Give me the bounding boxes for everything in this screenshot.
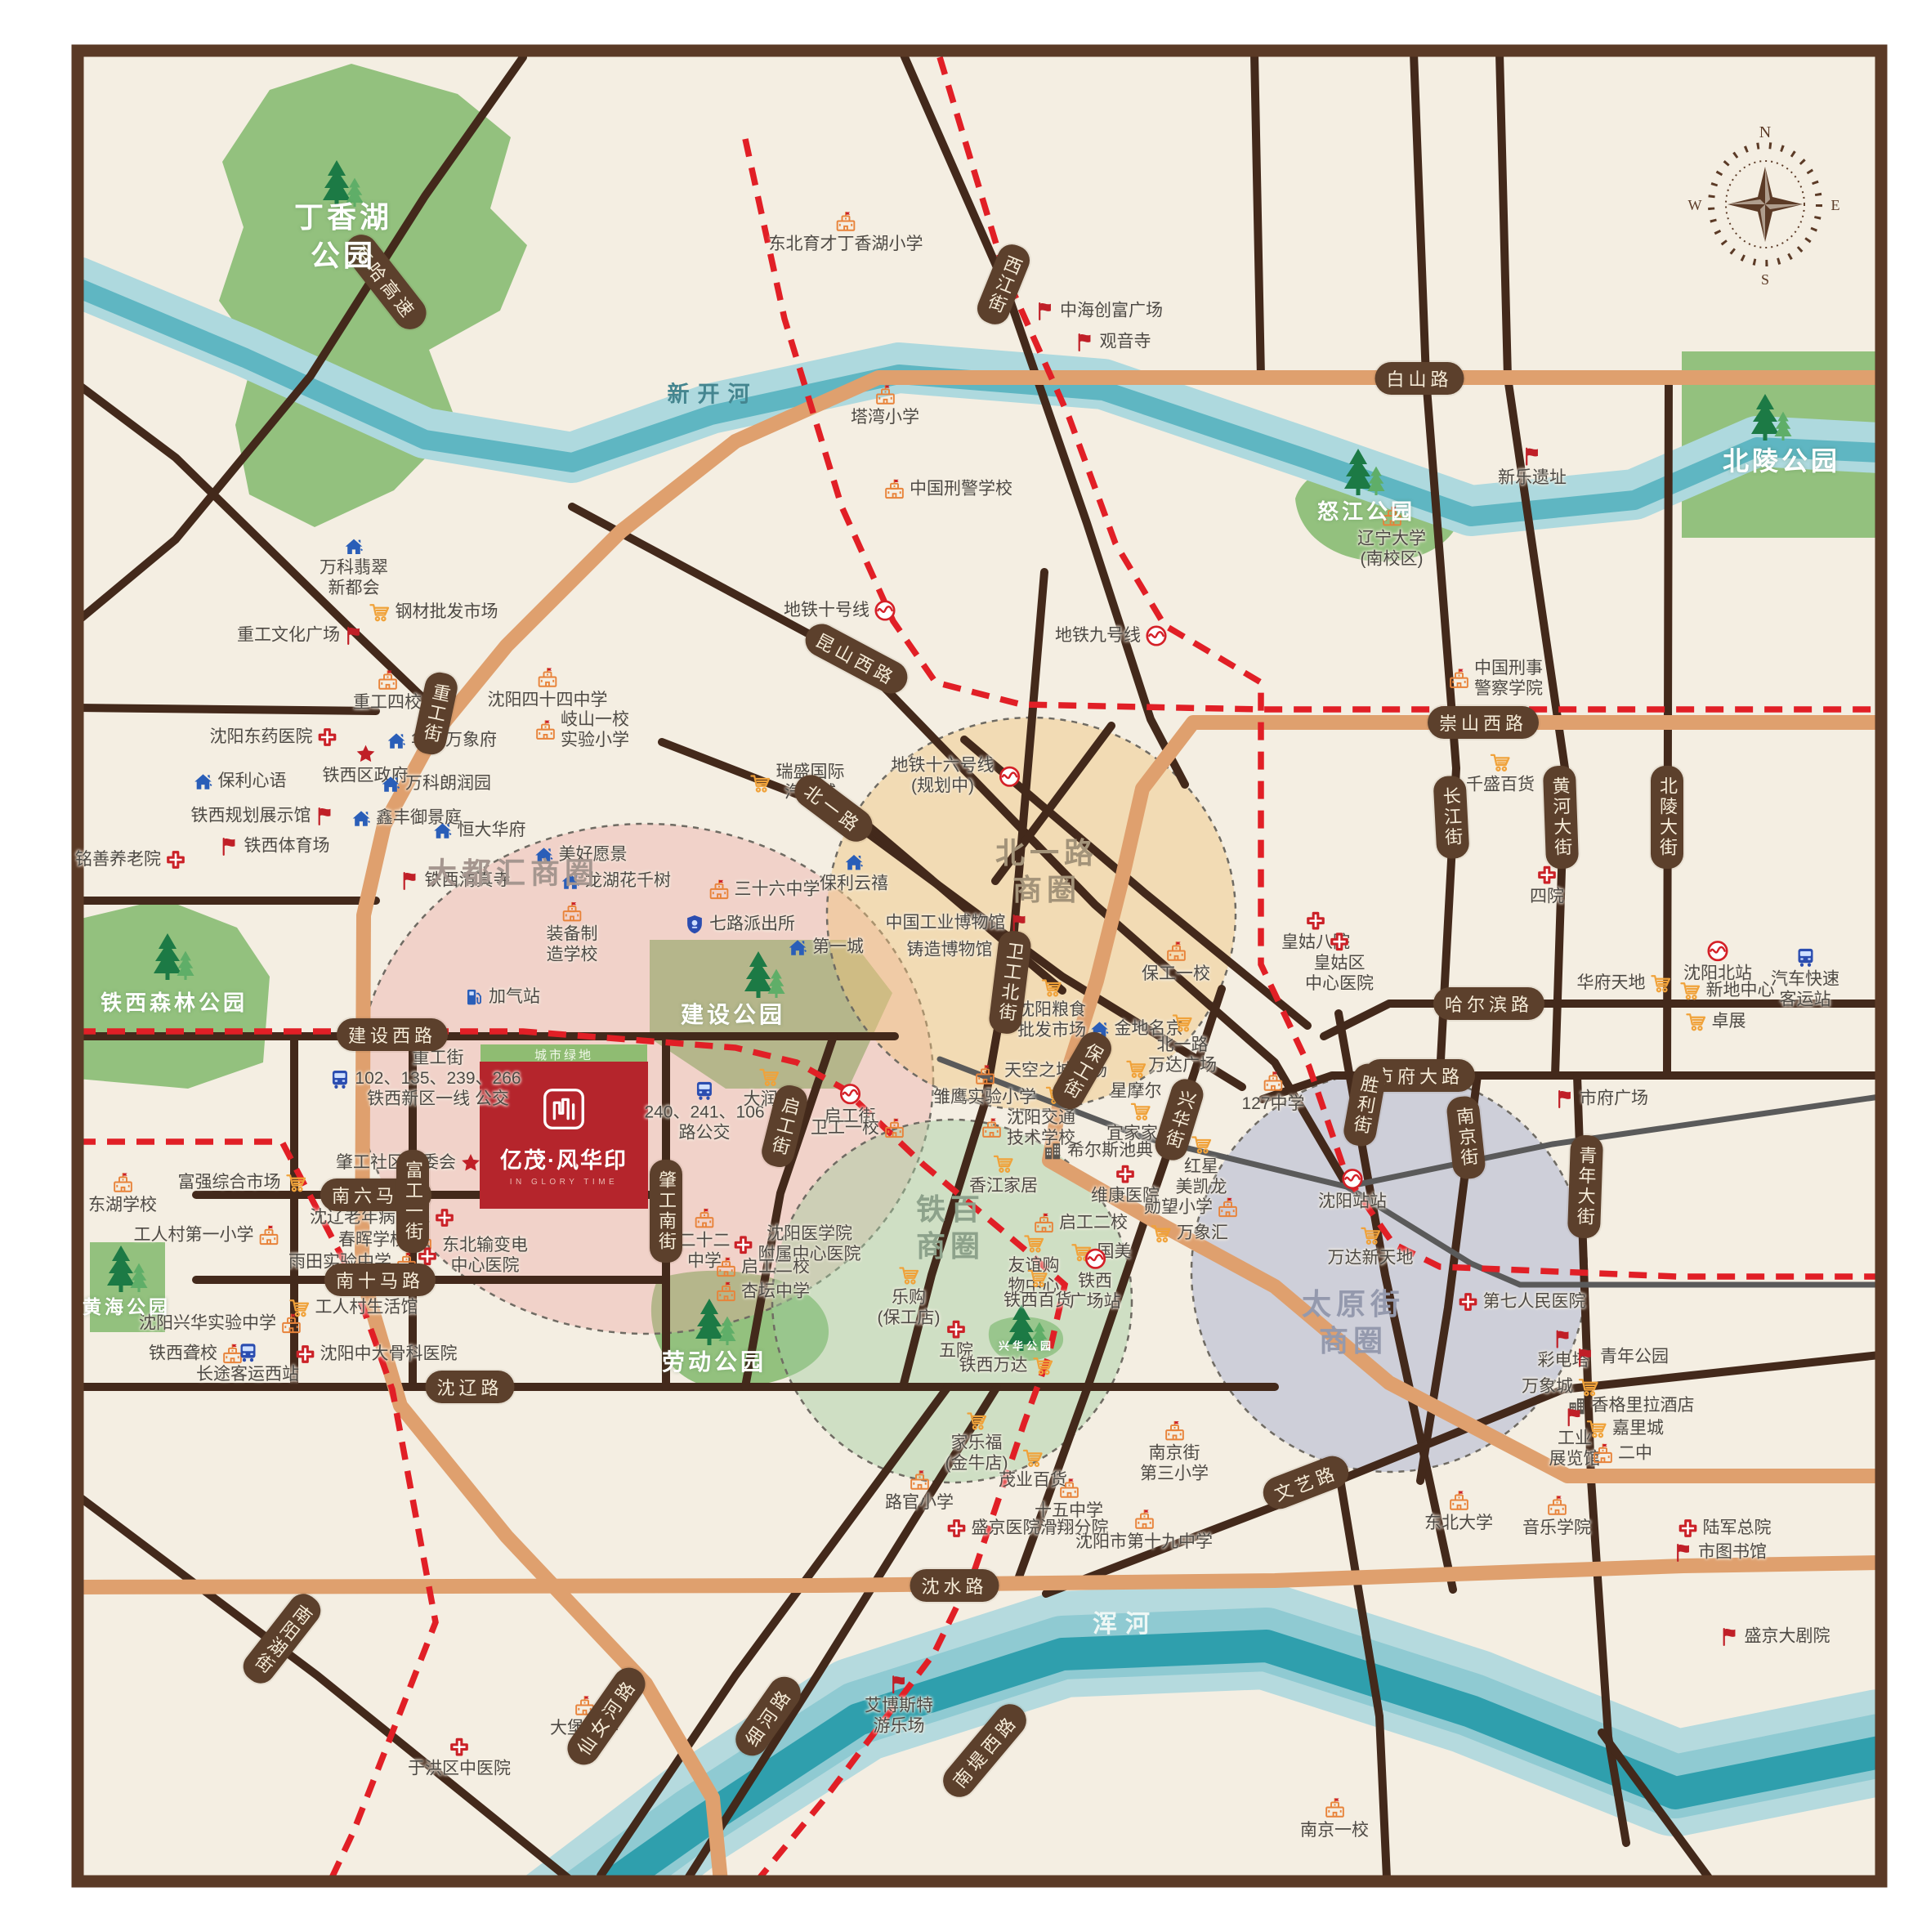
metro-icon [1084, 1247, 1106, 1270]
cart-icon [1359, 1224, 1382, 1247]
cart-icon [285, 1171, 308, 1194]
flag-icon [220, 837, 240, 857]
school-icon [981, 1118, 1003, 1140]
school-poi: 保工一校 [1142, 941, 1210, 985]
poi-label: 铁西 广场站 [1070, 1272, 1121, 1313]
poi-label: 盛京大剧院 [1745, 1627, 1830, 1648]
flag-icon [1720, 1627, 1741, 1648]
poi-label: 中国刑警学校 [910, 480, 1012, 500]
cart-icon [1022, 1232, 1045, 1254]
school-poi: 岐山一校 实验小学 [534, 710, 629, 751]
school-icon [909, 1469, 931, 1491]
school-poi: 勋望小学 [1144, 1197, 1239, 1219]
flag-icon [1522, 446, 1543, 467]
poi-label: 卫工一校 [811, 1119, 879, 1139]
cross-icon [733, 1234, 754, 1255]
cart-icon [1171, 1011, 1194, 1034]
cart-poi: 卓展 [1685, 1010, 1746, 1033]
poi-label: 沈阳市第十九中学 [1075, 1532, 1213, 1553]
poi-label: 万象城 [1522, 1377, 1573, 1398]
cross-poi: 于洪区中医院 [408, 1737, 511, 1780]
poi-label: 富强综合市场 [178, 1173, 281, 1193]
flag-poi: 铁西体育场 [220, 837, 330, 857]
house-poi: 第一城 [787, 937, 864, 958]
school-poi: 东湖学校 [88, 1172, 157, 1216]
poi-label: 观音寺 [1100, 333, 1151, 353]
poi-label: 加气站 [489, 987, 540, 1008]
poi-label: 南京一校 [1300, 1821, 1369, 1841]
school-poi: 重工四校 [353, 669, 422, 713]
poi-label: 香格里拉酒店 [1592, 1396, 1695, 1416]
cart-icon [1129, 1100, 1152, 1123]
school-icon [1592, 1443, 1614, 1465]
poi-label: 中国刑事 警察学院 [1474, 659, 1543, 700]
poi-label: 艾博斯特 游乐场 [865, 1697, 933, 1737]
park-label: 黄海公园 [83, 1295, 171, 1320]
road-pill: 南十马路 [324, 1263, 436, 1296]
poi-label: 市图书馆 [1698, 1543, 1767, 1563]
flag-icon [1035, 302, 1056, 322]
river-label: 浑河 [1093, 1603, 1158, 1639]
poi-label: 保工一校 [1142, 964, 1210, 985]
cart-icon [965, 1409, 988, 1432]
poi-label: 四院 [1530, 888, 1564, 908]
poi-label: 铭善养老院 [75, 850, 161, 870]
cross-icon [946, 1518, 968, 1539]
park-label: 北陵公园 [1723, 445, 1840, 479]
poi-label: 地铁十六号线 (规划中) [892, 756, 995, 797]
cart-icon [749, 771, 772, 794]
school-icon [1217, 1197, 1239, 1219]
school-poi: 塔湾小学 [851, 384, 919, 428]
cart-icon [1026, 1267, 1049, 1290]
school-poi: 启工二校 [715, 1257, 810, 1279]
poi-label: 钢材批发市场 [396, 602, 498, 623]
school-icon [534, 720, 557, 742]
cart-icon [758, 1066, 780, 1089]
building-poi: 希尔斯池典 [1042, 1140, 1153, 1161]
road-pill: 富工一街 [396, 1150, 429, 1253]
poi-label: 沈阳中大骨科医院 [320, 1344, 458, 1365]
cart-icon [1150, 1222, 1173, 1245]
flag-icon [889, 1675, 910, 1695]
poi-label: 万科翡翠 新都会 [320, 558, 388, 599]
school-icon [537, 667, 559, 689]
poi-label: 长途客运西站 [196, 1365, 299, 1385]
park-label: 兴华公园 [999, 1340, 1054, 1354]
school-icon [1058, 1478, 1080, 1500]
cross-poi: 陆军总院 [1678, 1518, 1772, 1539]
school-poi: 沈阳市第十九中学 [1075, 1509, 1213, 1553]
bus-icon [237, 1341, 259, 1363]
house-icon [351, 807, 372, 829]
park-label: 铁西森林公园 [101, 990, 248, 1017]
school-icon [883, 479, 905, 501]
house-poi: 恒大华府 [432, 820, 526, 841]
flag-poi: 市府广场 [1555, 1089, 1648, 1110]
metro-icon [1706, 940, 1729, 963]
flag-icon [1555, 1089, 1576, 1110]
park-label: 怒江公园 [1317, 499, 1415, 526]
poi-label: 东北输变电 中心医院 [442, 1236, 528, 1277]
poi-label: 重工街 102、135、239、266 铁西新区一线 公交 [355, 1049, 521, 1109]
road-pill: 胜利街 [1342, 1062, 1388, 1148]
house-icon [432, 820, 454, 841]
poi-label: 重工四校 [353, 693, 422, 713]
poi-label: 乐购 (保工店) [878, 1288, 941, 1329]
metro-icon [1145, 624, 1168, 647]
school-poi: 东北大学 [1424, 1490, 1493, 1534]
park-label: 丁香湖 公园 [294, 199, 392, 275]
poi-label: 嘉里城 [1612, 1419, 1664, 1439]
metro-icon [999, 765, 1021, 788]
poi-label: 南京街 第三小学 [1140, 1444, 1209, 1485]
flag-poi: 铁西规划展示馆 [191, 807, 336, 827]
metro-icon [874, 599, 896, 622]
cross-poi: 第七人民医院 [1458, 1291, 1586, 1313]
house-poi: 万科翡翠 新都会 [320, 535, 388, 599]
poi-label: 启工二校 [1059, 1214, 1128, 1234]
cart-icon [1190, 1133, 1213, 1156]
poi-label: 红星 美凯龙 [1176, 1157, 1227, 1198]
cart-poi: 工人村生活馆 [288, 1296, 418, 1319]
school-icon [1324, 1797, 1346, 1819]
poi-label: 铸造博物馆 [907, 941, 993, 961]
flag-icon [1565, 1407, 1585, 1428]
cross-poi: 皇姑区 中心医院 [1305, 931, 1374, 995]
flag-icon [1576, 1348, 1596, 1368]
school-icon [1165, 941, 1187, 963]
school-icon [1448, 1490, 1470, 1512]
poi-label: 第一城 [812, 937, 864, 958]
school-icon [715, 1257, 737, 1279]
flag-poi: 重工文化广场 [237, 626, 364, 646]
bus-poi: 重工街 102、135、239、266 铁西新区一线 公交 [329, 1049, 521, 1109]
poi-label: 沈阳站站 [1318, 1192, 1387, 1213]
cross-icon [1305, 910, 1326, 932]
school-poi: 雏鹰实验小学 [933, 1064, 1036, 1108]
cart-icon [1685, 1010, 1708, 1033]
cart-poi: 新地中心 [1679, 979, 1775, 1002]
cross-icon [945, 1319, 967, 1340]
road-pill: 白山路 [1374, 362, 1464, 395]
poi-label: 汽车快速 客运站 [1771, 970, 1839, 1011]
road-pill: 哈尔滨路 [1433, 987, 1544, 1020]
metro-poi: 地铁九号线 [1055, 624, 1168, 647]
gas-poi: 加气站 [463, 986, 540, 1008]
bus-poi: 汽车快速 客运站 [1771, 946, 1839, 1011]
cart-icon [1124, 1058, 1147, 1080]
school-poi: 沈阳四十四中学 [488, 667, 608, 711]
school-icon [883, 1118, 905, 1140]
poi-label: 二中 [1618, 1444, 1652, 1465]
road-pill: 文艺路 [1258, 1451, 1353, 1514]
cart-icon [897, 1263, 920, 1286]
poi-label: 音乐学院 [1522, 1518, 1591, 1539]
poi-label: 塔湾小学 [851, 408, 919, 428]
school-poi: 装备制 造学校 [547, 901, 598, 966]
road-pill: 南阳湖街 [237, 1588, 326, 1689]
school-poi: 中国刑事 警察学院 [1448, 659, 1543, 700]
cross-icon [1458, 1291, 1479, 1313]
road-pill: 沈水路 [910, 1569, 999, 1602]
flag-poi: 青年公园 [1576, 1348, 1669, 1368]
poi-label: 沈阳四十四中学 [488, 691, 608, 711]
poi-label: 装备制 造学校 [547, 925, 598, 966]
school-icon [708, 879, 731, 901]
business-circle-label: 太原街 商圈 [1302, 1286, 1405, 1359]
school-icon [694, 1208, 716, 1230]
park-label: 建设公园 [681, 1000, 785, 1030]
cart-poi: 铁西百货 [1003, 1267, 1072, 1312]
poi-label: 路官小学 [885, 1493, 954, 1514]
flag-poi: 盛京大剧院 [1720, 1627, 1830, 1648]
poi-label: 工人村生活馆 [315, 1298, 418, 1318]
school-icon [1262, 1071, 1284, 1093]
police-poi: 七路派出所 [684, 914, 795, 935]
poi-label: 岐山一校 实验小学 [561, 710, 629, 751]
cross-icon [1329, 931, 1350, 952]
poi-label: 三十六中学 [735, 880, 820, 901]
school-icon [974, 1064, 996, 1086]
location-map: N E S W 城市绿地 亿茂·风华印 IN GLORY TIME 东北育才丁香… [0, 0, 1931, 1932]
star-icon [355, 744, 376, 765]
house-icon [843, 852, 865, 873]
poi-label: 万科朗润园 [405, 774, 491, 794]
business-circle-label: 大都汇商圈 [427, 855, 599, 892]
poi-label: 保利心语 [218, 771, 287, 792]
cross-poi: 东北输变电 中心医院 [417, 1236, 528, 1277]
business-circle-label: 铁百 商圈 [916, 1191, 985, 1264]
poi-label: 中海创富广场 [1060, 302, 1163, 322]
road-pill: 西江街 [973, 240, 1035, 329]
poi-label: 铁西万达 [959, 1356, 1028, 1376]
poi-label: 市府广场 [1580, 1089, 1648, 1110]
cross-poi: 沈阳中大骨科医院 [295, 1344, 458, 1365]
road-pill: 崇山西路 [1428, 706, 1539, 739]
cart-icon [1679, 979, 1702, 1002]
poi-label: 卓展 [1712, 1012, 1746, 1032]
school-poi: 中国刑警学校 [883, 479, 1012, 501]
poi-label: 恒大华府 [458, 821, 526, 841]
poi-label: 沈阳东药医院 [210, 727, 313, 748]
school-poi: 路官小学 [885, 1469, 954, 1514]
metro-poi: 地铁十号线 [784, 599, 896, 622]
school-poi: 三十六中学 [708, 879, 820, 901]
poi-label: 辽宁大学 (南校区) [1357, 530, 1426, 570]
cart-icon [288, 1296, 311, 1319]
star-icon [460, 1152, 481, 1174]
poi-label: 万象汇 [1177, 1223, 1228, 1244]
poi-label: 东北大学 [1424, 1514, 1493, 1534]
house-icon [380, 773, 401, 794]
school-poi: 南京街 第三小学 [1140, 1420, 1209, 1485]
flag-icon [1075, 333, 1096, 353]
bus-poi: 长途客运西站 [196, 1341, 299, 1385]
cross-icon [295, 1344, 316, 1365]
cart-poi: 沈阳粮食 批发市场 [1017, 976, 1086, 1041]
house-poi: 万科朗润园 [380, 773, 491, 794]
cross-icon [165, 849, 186, 870]
road-pill: 黄河大街 [1543, 765, 1579, 869]
poi-label: 华府天地 [1577, 973, 1646, 994]
road-pill: 沈辽路 [425, 1371, 514, 1403]
poi-label: 新地中心 [1706, 981, 1775, 1001]
poi-label: 勋望小学 [1144, 1198, 1213, 1219]
bus-icon [1795, 946, 1817, 968]
house-poi: 保利心语 [193, 771, 287, 792]
poi-label: 万达新天地 [1328, 1249, 1414, 1269]
poi-label: 陆军总院 [1703, 1518, 1772, 1539]
poi-label: 重工文化广场 [237, 626, 340, 646]
metro-poi: 沈阳站站 [1318, 1168, 1387, 1213]
school-icon [561, 901, 583, 924]
road-pill: 细河路 [729, 1670, 807, 1762]
cross-poi: 沈阳东药医院 [210, 727, 338, 748]
school-icon [1546, 1495, 1568, 1517]
cart-poi: 钢材批发市场 [369, 601, 498, 624]
cart-icon [1489, 751, 1512, 774]
poi-label: 千盛百货 [1466, 776, 1535, 796]
cart-poi: 千盛百货 [1466, 751, 1535, 796]
poi-label: 127中学 [1241, 1094, 1304, 1115]
road-pill: 建设西路 [337, 1018, 448, 1051]
police-icon [684, 914, 705, 935]
house-icon [193, 771, 214, 792]
flag-poi: 艾博斯特 游乐场 [865, 1675, 933, 1737]
road-pill: 肇工南街 [650, 1160, 682, 1263]
gas-icon [463, 986, 485, 1008]
poi-label: 沈阳粮食 批发市场 [1017, 1000, 1086, 1041]
poi-label: 雏鹰实验小学 [933, 1088, 1036, 1108]
school-icon [835, 211, 857, 233]
road-pill: 南堤西路 [936, 1697, 1033, 1804]
poi-label: 铁西百货 [1003, 1291, 1072, 1312]
cross-icon [449, 1737, 470, 1758]
school-icon [715, 1281, 737, 1304]
cart-poi: 万达新天地 [1328, 1224, 1414, 1269]
cross-icon [434, 1207, 455, 1228]
poi-label: 保利云禧 [820, 874, 888, 895]
flag-poi: 新乐遗址 [1498, 446, 1567, 489]
school-icon [1133, 1509, 1155, 1531]
cart-poi: 万象汇 [1150, 1222, 1228, 1245]
cart-icon [369, 601, 391, 624]
bus-icon [329, 1067, 351, 1089]
poi-label: 新乐遗址 [1498, 468, 1567, 489]
poi-label: 第七人民医院 [1483, 1292, 1586, 1313]
cart-poi: 铁西万达 [959, 1354, 1055, 1377]
bus-icon [694, 1080, 716, 1102]
poi-label: 东北育才丁香湖小学 [769, 235, 923, 255]
flag-icon [1553, 1329, 1574, 1349]
poi-label: 地铁九号线 [1055, 626, 1141, 646]
road-pill: 昆山西路 [800, 618, 914, 699]
cart-poi: 富强综合市场 [178, 1171, 308, 1194]
metro-poi: 铁西 广场站 [1070, 1247, 1121, 1313]
school-icon [258, 1225, 280, 1247]
poi-label: 中国工业博物馆 [886, 914, 1006, 934]
house-icon [343, 535, 364, 557]
building-icon [1042, 1140, 1063, 1161]
house-icon [787, 937, 808, 958]
road-pill: 长江街 [1433, 776, 1469, 860]
cart-poi: 华府天地 [1577, 972, 1673, 995]
metro-icon [838, 1083, 861, 1106]
poi-label: 七路派出所 [709, 915, 795, 935]
metro-poi: 沈阳北站 [1683, 940, 1752, 985]
poi-label: 工人村第一小学 [134, 1226, 254, 1246]
school-poi: 二中 [1592, 1443, 1652, 1465]
cart-poi: 星摩尔 [1111, 1058, 1162, 1102]
school-icon [874, 384, 896, 406]
school-poi: 127中学 [1241, 1071, 1304, 1115]
school-poi: 杏坛中学 [715, 1281, 810, 1304]
cross-icon [1678, 1518, 1699, 1539]
school-icon [1448, 669, 1470, 691]
poi-label: 杏坛中学 [741, 1282, 810, 1303]
poi-label: 东湖学校 [88, 1196, 157, 1216]
cart-poi: 乐购 (保工店) [878, 1263, 941, 1329]
metro-poi: 地铁十六号线 (规划中) [892, 756, 1021, 797]
road-pill: 北陵大街 [1651, 766, 1683, 869]
flag-icon [315, 807, 336, 827]
house-poi: 保利云禧 [820, 852, 888, 895]
park-label: 劳动公园 [662, 1348, 767, 1377]
poi-label: 启工二校 [741, 1258, 810, 1278]
flag-poi: 中海创富广场 [1035, 302, 1163, 322]
school-poi: 东北育才丁香湖小学 [769, 211, 923, 255]
cart-icon [1650, 972, 1673, 995]
poi-label: 铁西体育场 [244, 837, 330, 857]
river-label: 新开河 [668, 377, 758, 409]
cart-icon [1040, 976, 1063, 999]
cart-icon [1032, 1354, 1055, 1377]
poi-label: 青年公园 [1600, 1348, 1669, 1368]
school-poi: 工人村第一小学 [134, 1225, 280, 1247]
flag-icon [344, 626, 364, 646]
poi-label: 地铁十号线 [784, 601, 869, 621]
school-poi: 南京一校 [1300, 1797, 1369, 1841]
poi-label: 铁西规划展示馆 [191, 807, 311, 827]
school-poi: 卫工一校 [811, 1118, 905, 1140]
business-circle-label: 北一路 商圈 [995, 834, 1098, 908]
flag-poi: 观音寺 [1075, 333, 1151, 353]
poi-label: 希尔斯池典 [1067, 1141, 1153, 1161]
cross-icon [1115, 1164, 1136, 1185]
flag-poi: 市图书馆 [1674, 1543, 1767, 1563]
school-icon [377, 669, 399, 691]
poi-label: 于洪区中医院 [408, 1760, 511, 1780]
cart-icon [1021, 1447, 1044, 1469]
label-overlay: 东北育才丁香湖小学中海创富广场观音寺塔湾小学中国刑警学校新乐遗址辽宁大学 (南校… [0, 0, 1931, 1932]
poi-label: 皇姑区 中心医院 [1305, 954, 1374, 995]
school-poi: 音乐学院 [1522, 1495, 1591, 1539]
flag-icon [400, 871, 421, 892]
cart-icon [992, 1152, 1015, 1175]
school-icon [112, 1172, 134, 1194]
road-pill: 南京街 [1446, 1095, 1486, 1181]
flag-icon [1674, 1543, 1694, 1563]
road-pill: 青年大街 [1567, 1134, 1603, 1238]
cross-poi: 四院 [1530, 865, 1564, 908]
metro-icon [1341, 1168, 1364, 1191]
cross-poi: 铭善养老院 [75, 849, 186, 870]
school-icon [1164, 1420, 1186, 1442]
